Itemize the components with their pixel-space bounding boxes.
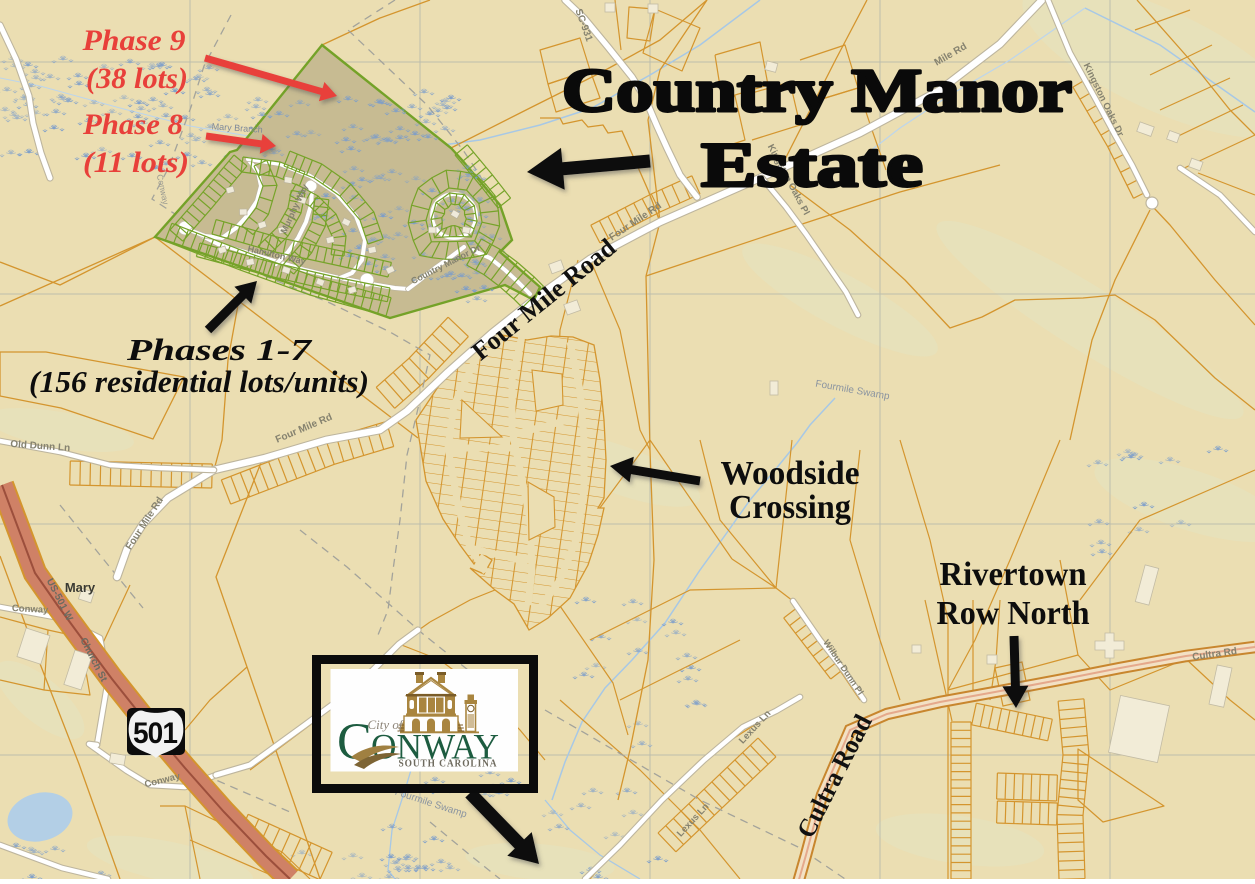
svg-text:Rivertown: Rivertown [940, 556, 1087, 593]
svg-text:(11 lots): (11 lots) [83, 146, 189, 179]
svg-text:501: 501 [133, 717, 177, 750]
svg-text:Conway: Conway [12, 603, 50, 616]
svg-text:Phase 8: Phase 8 [82, 108, 183, 141]
svg-text:Estate: Estate [701, 130, 923, 200]
svg-text:(156 residential lots/units): (156 residential lots/units) [29, 364, 369, 399]
svg-text:Phase 9: Phase 9 [81, 24, 185, 57]
svg-text:Country Manor: Country Manor [562, 58, 1072, 125]
svg-text:(38 lots): (38 lots) [86, 62, 188, 95]
svg-text:SOUTH CAROLINA: SOUTH CAROLINA [399, 759, 498, 770]
svg-text:Row North: Row North [937, 595, 1090, 632]
svg-text:Crossing: Crossing [729, 489, 851, 526]
svg-text:Phases 1-7: Phases 1-7 [126, 332, 313, 367]
svg-text:Mary: Mary [65, 580, 96, 595]
svg-text:Woodside: Woodside [721, 455, 860, 492]
